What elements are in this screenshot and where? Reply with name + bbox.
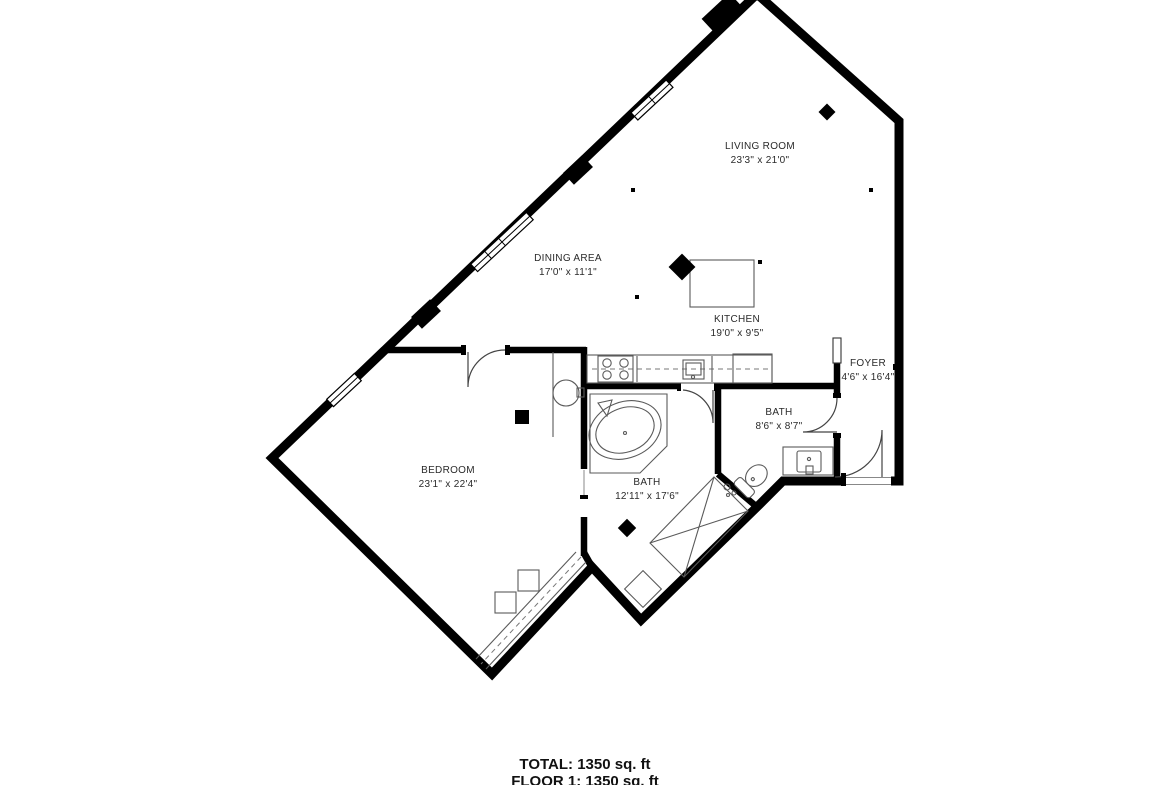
room-label-dining: DINING AREA	[534, 253, 602, 264]
jamb-nub	[833, 433, 841, 438]
column-square-icon	[515, 410, 529, 424]
step-icon	[495, 592, 516, 613]
foyer-pilaster	[833, 338, 841, 363]
room-label-bath-small: BATH	[765, 407, 792, 418]
floorplan-page: LIVING ROOM 23'3" x 21'0" DINING AREA 17…	[0, 0, 1170, 785]
jamb-nub	[461, 345, 466, 355]
tick-mark	[631, 188, 635, 192]
foyer-fixtures	[833, 338, 841, 363]
jamb-nub	[841, 473, 846, 486]
floorplan-canvas: LIVING ROOM 23'3" x 21'0" DINING AREA 17…	[0, 0, 1170, 785]
room-label-bedroom: BEDROOM	[421, 465, 475, 476]
kitchen-island	[690, 260, 754, 307]
room-label-foyer: FOYER	[850, 358, 886, 369]
floor1-area-text: FLOOR 1: 1350 sq. ft	[0, 773, 1170, 785]
room-dims-kitchen: 19'0" x 9'5"	[711, 328, 764, 339]
step-icon	[518, 570, 539, 591]
room-label-kitchen: KITCHEN	[714, 314, 760, 325]
room-label-living: LIVING ROOM	[725, 141, 795, 152]
exterior-wall-outline	[272, 0, 899, 674]
tick-mark	[893, 364, 899, 370]
room-dims-bath-small: 8'6" x 8'7"	[755, 421, 802, 432]
tick-mark	[758, 260, 762, 264]
room-dims-bedroom: 23'1" x 22'4"	[419, 479, 478, 490]
exterior-walls	[272, 0, 899, 674]
tick-mark	[635, 295, 639, 299]
jamb-nub	[505, 345, 510, 355]
room-label-bath-large: BATH	[633, 477, 660, 488]
room-dims-bath-large: 12'11" x 17'6"	[615, 491, 679, 502]
area-summary: TOTAL: 1350 sq. ft FLOOR 1: 1350 sq. ft	[0, 756, 1170, 785]
jamb-nub	[833, 393, 841, 398]
tick-mark	[869, 188, 873, 192]
room-dims-foyer: 4'6" x 16'4"	[842, 372, 895, 383]
slider-stop	[580, 495, 588, 499]
room-dims-living: 23'3" x 21'0"	[731, 155, 790, 166]
total-area-text: TOTAL: 1350 sq. ft	[0, 756, 1170, 773]
room-dims-dining: 17'0" x 11'1"	[539, 267, 597, 278]
